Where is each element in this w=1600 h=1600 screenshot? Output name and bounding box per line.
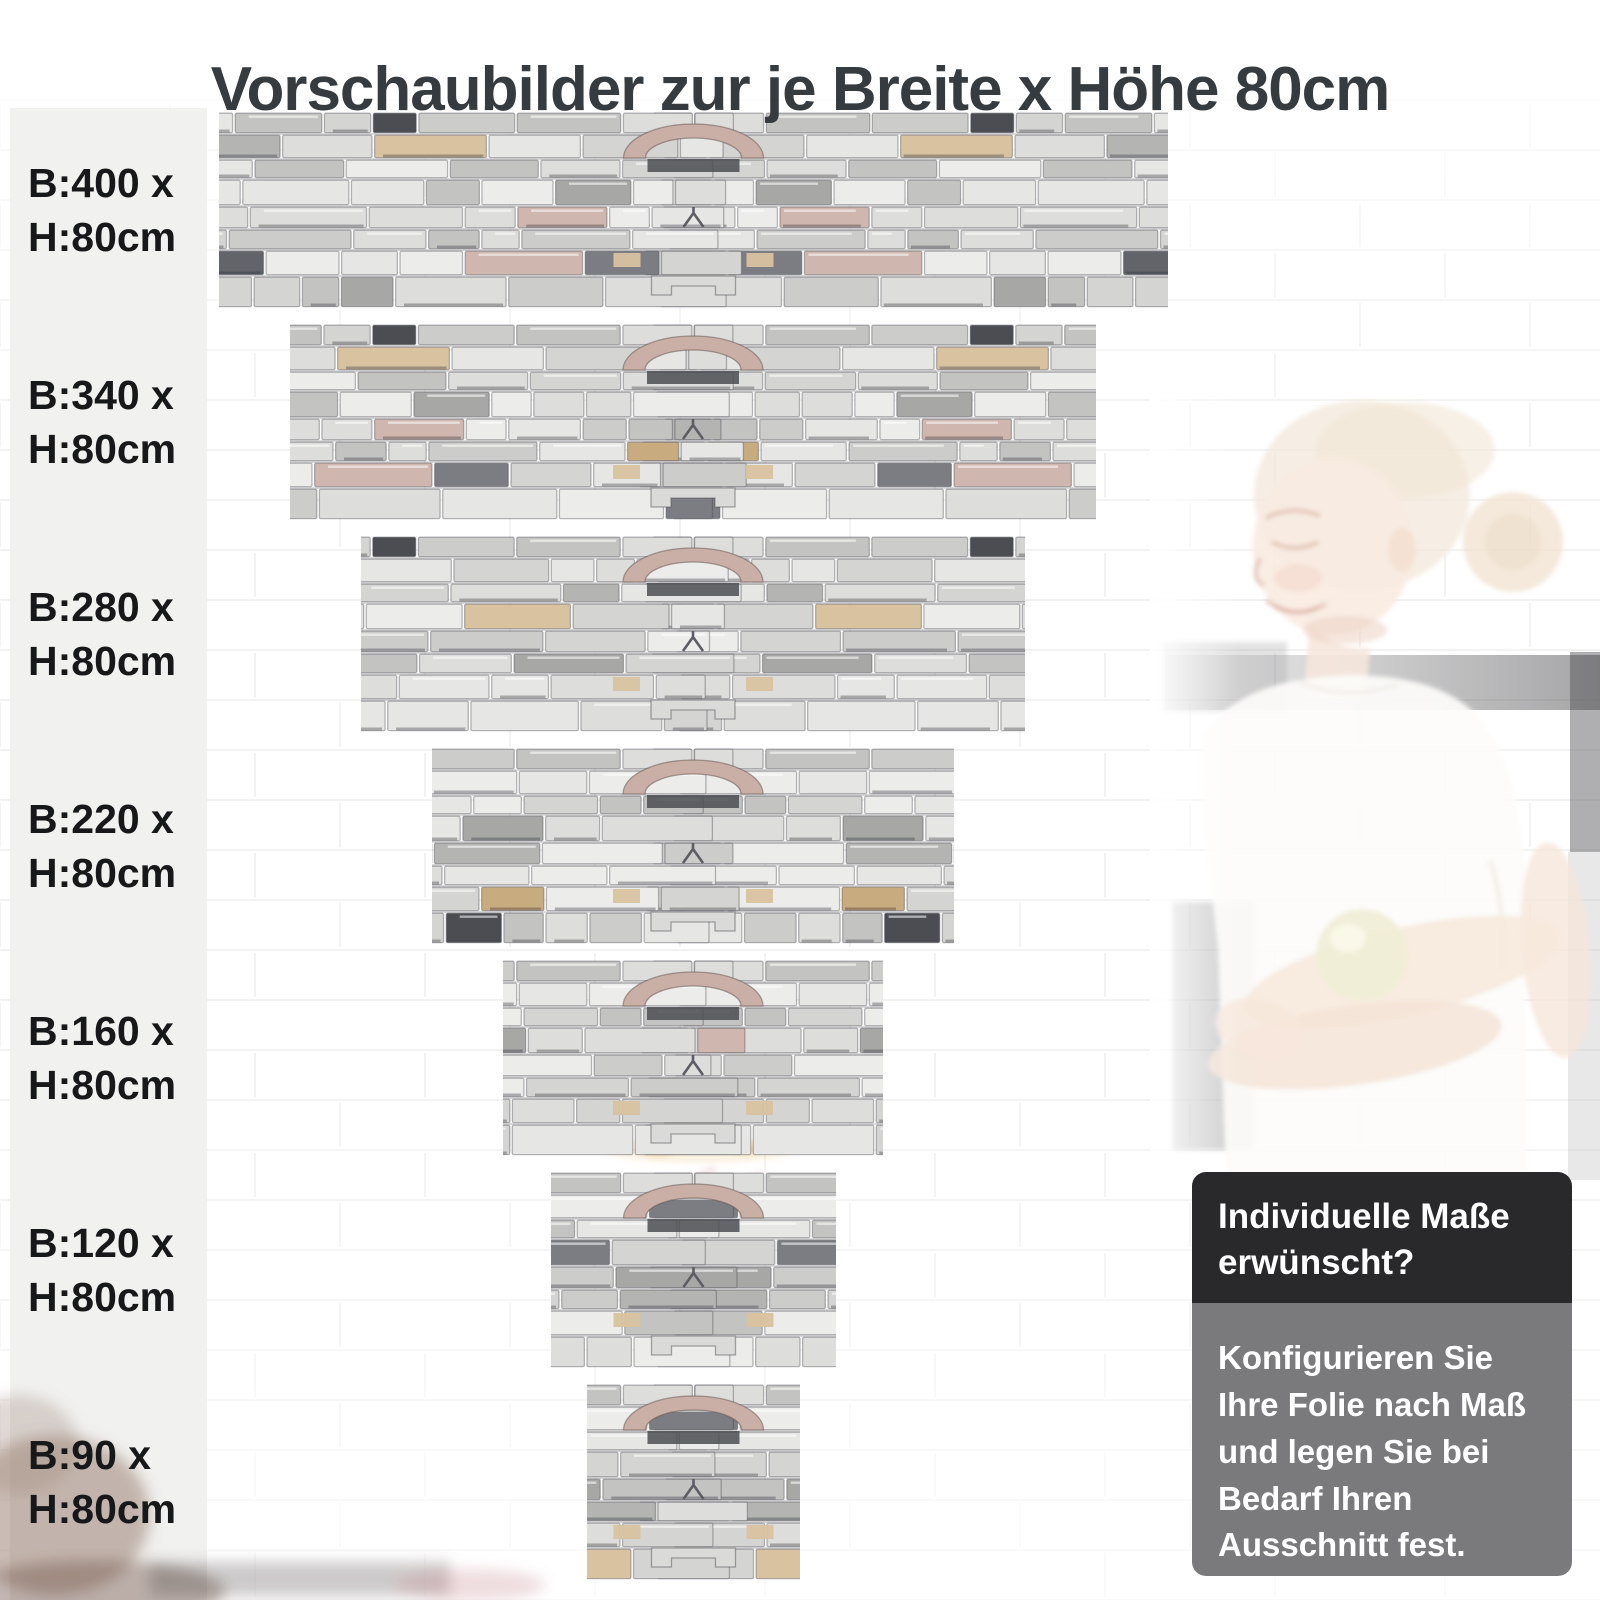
preview-strip-120x80 — [551, 1172, 836, 1368]
info-box-body: Konfigurieren Sie Ihre Folie nach Maß un… — [1192, 1303, 1572, 1576]
size-label-height: H:80cm — [28, 1270, 176, 1324]
size-label-160x80: B:160 xH:80cm — [28, 960, 176, 1156]
size-label-220x80: B:220 xH:80cm — [28, 748, 176, 944]
preview-strip-280x80 — [361, 536, 1025, 732]
size-label-height: H:80cm — [28, 210, 176, 264]
size-label-340x80: B:340 xH:80cm — [28, 324, 176, 520]
size-label-height: H:80cm — [28, 422, 176, 476]
size-label-width: B:160 x — [28, 1004, 176, 1058]
size-label-height: H:80cm — [28, 1058, 176, 1112]
preview-strip-340x80 — [290, 324, 1096, 520]
preview-strip-160x80 — [503, 960, 883, 1156]
size-label-height: H:80cm — [28, 634, 176, 688]
info-box: Individuelle Maße erwünscht? Konfigurier… — [1192, 1172, 1572, 1576]
preview-strip-90x80 — [587, 1384, 800, 1580]
size-label-400x80: B:400 xH:80cm — [28, 112, 176, 308]
size-label-width: B:280 x — [28, 580, 176, 634]
size-label-width: B:340 x — [28, 368, 176, 422]
size-label-width: B:120 x — [28, 1216, 176, 1270]
product-size-preview-image: Vorschaubilder zur je Breite x Höhe 80cm… — [0, 0, 1600, 1600]
size-label-width: B:400 x — [28, 156, 176, 210]
size-label-280x80: B:280 xH:80cm — [28, 536, 176, 732]
size-label-120x80: B:120 xH:80cm — [28, 1172, 176, 1368]
size-label-width: B:220 x — [28, 792, 176, 846]
info-box-heading: Individuelle Maße erwünscht? — [1192, 1172, 1572, 1303]
size-label-90x80: B:90 xH:80cm — [28, 1384, 176, 1580]
size-label-height: H:80cm — [28, 846, 176, 900]
preview-strip-400x80 — [219, 112, 1168, 308]
size-label-height: H:80cm — [28, 1482, 176, 1536]
page-title: Vorschaubilder zur je Breite x Höhe 80cm — [0, 54, 1600, 125]
preview-strip-220x80 — [432, 748, 954, 944]
size-label-width: B:90 x — [28, 1428, 176, 1482]
